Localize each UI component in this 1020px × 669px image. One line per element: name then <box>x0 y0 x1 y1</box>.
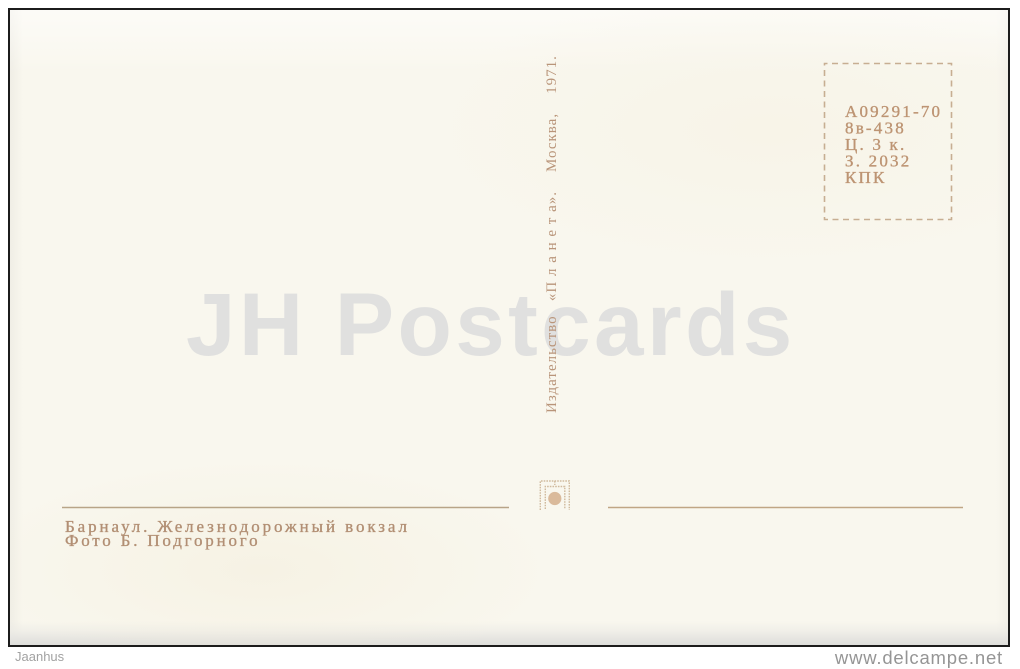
svg-text:Фото Б. Подгорного: Фото Б. Подгорного <box>65 531 260 550</box>
svg-text:Издательство «П л а н е т а»: Издательство «П л а н е т а». Москва, 19… <box>544 55 560 413</box>
svg-text:КПК: КПК <box>845 168 887 187</box>
